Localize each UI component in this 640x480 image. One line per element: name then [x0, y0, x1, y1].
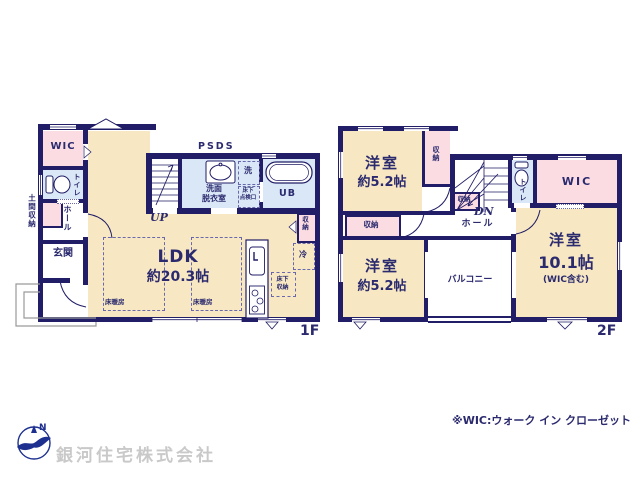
stairs-1f: [152, 159, 178, 208]
logo-needle: [31, 425, 37, 433]
ub-label: UB: [279, 189, 296, 199]
hall-label-1f: ホール: [63, 205, 71, 232]
closet2-label: 収納: [345, 221, 397, 229]
bedroom2-size: 約5.2帖: [342, 280, 422, 293]
wall: [422, 131, 425, 187]
wall: [617, 154, 622, 322]
inspection-label-1: 床下: [238, 189, 258, 195]
logo-bird: [17, 437, 51, 450]
window: [513, 156, 527, 160]
dn-label: DN: [474, 206, 494, 217]
window: [618, 242, 622, 270]
ldk-name-label: LDK: [138, 249, 218, 266]
storage-label-1f: 収納: [301, 216, 308, 231]
door-opening: [514, 203, 530, 208]
closet1-label: 収納: [432, 146, 439, 162]
toilet-label-2f: トイレ: [519, 178, 526, 202]
window: [558, 156, 586, 160]
floorplan-page: WIC トイレ 土間収納 ホール 玄関 LDK 約20.3帖 床暖房 床暖房 P…: [0, 0, 640, 480]
balcony-rail: [428, 321, 511, 323]
wall: [146, 153, 152, 214]
company-logo: N: [12, 418, 58, 466]
bedroom2-name: 洋室: [342, 259, 422, 274]
wall: [43, 240, 88, 244]
wall: [178, 158, 182, 210]
wic-opening: [556, 204, 584, 209]
floor1-tag: 1F: [300, 324, 319, 338]
floor-heating-label-2: 床暖房: [193, 299, 213, 306]
wic-note: ※WIC:ウォーク イン クローゼット: [452, 412, 631, 428]
bedroom1-name: 洋室: [342, 156, 422, 171]
doma-storage-label: 土間収納: [28, 194, 36, 228]
laundry-label: 洗: [239, 167, 257, 175]
window: [404, 127, 429, 131]
window: [358, 127, 383, 131]
inspection-label-2: 点検口: [238, 196, 258, 202]
washroom-label-1: 洗面: [194, 185, 234, 193]
underfloor-storage-label-1: 床下: [271, 277, 294, 283]
window: [352, 318, 380, 322]
door-opening: [211, 208, 237, 214]
window: [258, 318, 286, 322]
underfloor-storage-label-2: 収納: [271, 285, 294, 291]
psds-label: PSDS: [198, 142, 235, 152]
bedroom3-note: (WIC含む): [516, 276, 616, 285]
floor2-tag: 2F: [597, 324, 616, 338]
bedroom3-name: 洋室: [516, 233, 616, 248]
bedroom1-size: 約5.2帖: [342, 176, 422, 189]
fridge-label: 冷: [294, 251, 312, 259]
balcony-label: バルコニー: [428, 276, 512, 285]
sliding-door: [512, 252, 516, 298]
doma-storage-room: [43, 203, 63, 228]
wall: [338, 211, 455, 215]
wic-label-1f: WIC: [43, 142, 83, 152]
hall-label-2f: ホール: [448, 220, 508, 229]
wall: [38, 278, 43, 322]
logo-n: N: [39, 423, 47, 433]
sliding-door: [425, 252, 428, 298]
sliding-door: [57, 199, 79, 204]
balcony-rail: [428, 316, 511, 318]
closet3-label: 収納: [452, 196, 476, 203]
wall: [83, 124, 88, 144]
bathroom-ub: [263, 159, 315, 208]
door-opening: [70, 278, 83, 283]
door-opening: [83, 213, 88, 237]
wall: [422, 184, 452, 187]
bedroom3-size: 10.1帖: [516, 255, 616, 271]
door-opening: [83, 144, 88, 160]
wall: [83, 237, 88, 285]
toilet-label-1f: トイレ: [73, 173, 80, 197]
wall: [43, 166, 88, 170]
up-label: UP: [150, 212, 168, 223]
window: [50, 125, 76, 129]
wall: [340, 236, 516, 240]
wall: [508, 158, 512, 208]
wall: [450, 154, 455, 212]
wic-label-2f: WIC: [537, 176, 617, 187]
window: [152, 318, 242, 322]
window: [547, 318, 587, 322]
company-name: 銀河住宅株式会社: [56, 441, 216, 466]
floor-heating-label-1: 床暖房: [105, 299, 125, 306]
door-opening: [511, 212, 516, 234]
ldk-size-label: 約20.3帖: [138, 270, 218, 284]
wall: [146, 153, 320, 159]
window: [262, 154, 276, 158]
wall: [338, 126, 458, 131]
window: [39, 175, 42, 195]
washroom-label-2: 脱衣室: [194, 195, 234, 203]
genkan-label: 玄関: [43, 249, 83, 259]
wall: [315, 153, 320, 322]
